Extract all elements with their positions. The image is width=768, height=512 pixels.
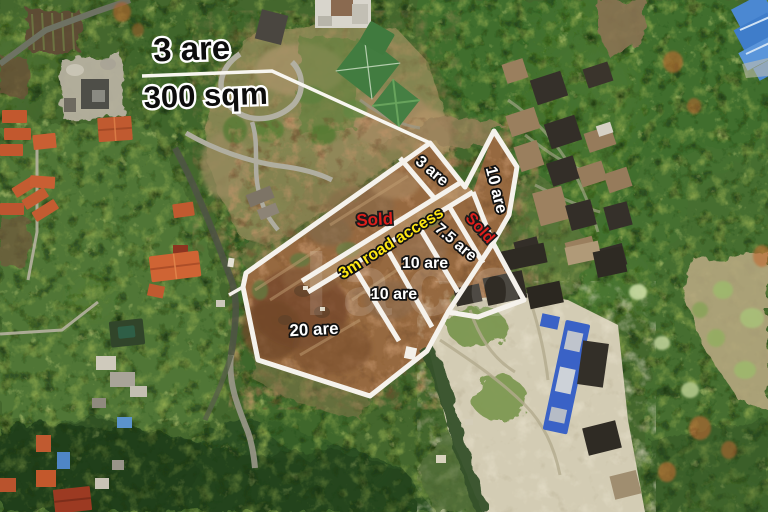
svg-text:10 are: 10 are [371, 286, 417, 303]
svg-text:Sold: Sold [356, 209, 394, 230]
svg-text:300 sqm: 300 sqm [143, 76, 268, 115]
svg-text:3 are: 3 are [152, 29, 230, 69]
svg-text:laco: laco [304, 235, 536, 334]
svg-text:20 are: 20 are [289, 319, 339, 341]
svg-text:10 are: 10 are [402, 255, 448, 272]
